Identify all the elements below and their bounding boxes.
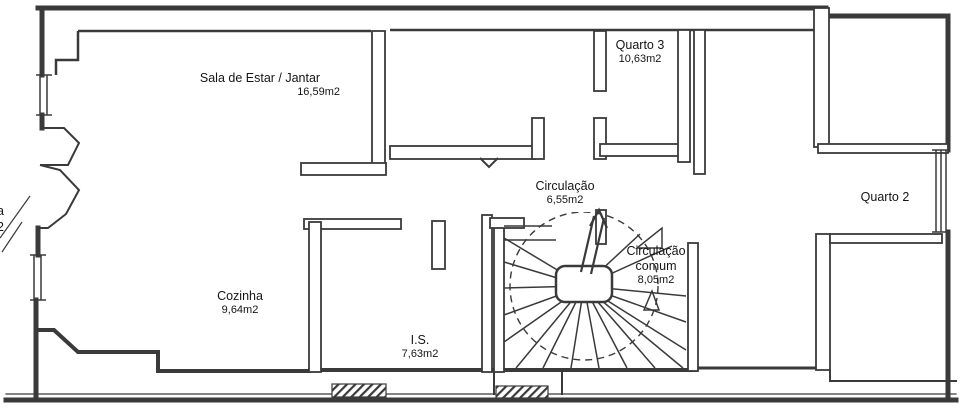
door-swings <box>637 228 662 310</box>
floor-plan: Sala de Estar / Jantar 16,59m2 Quarto 3 … <box>0 0 960 415</box>
interior-walls <box>56 8 948 372</box>
hatched-window-sill <box>332 384 386 397</box>
hatched-window-sill <box>496 386 548 398</box>
edge-label-line2: 2 <box>0 219 4 235</box>
stair-newel <box>556 266 612 302</box>
staircase <box>504 212 686 368</box>
floor-plan-drawing <box>0 0 960 415</box>
edge-label-fragment: a 2 <box>0 203 4 235</box>
edge-label-line1: a <box>0 203 4 219</box>
